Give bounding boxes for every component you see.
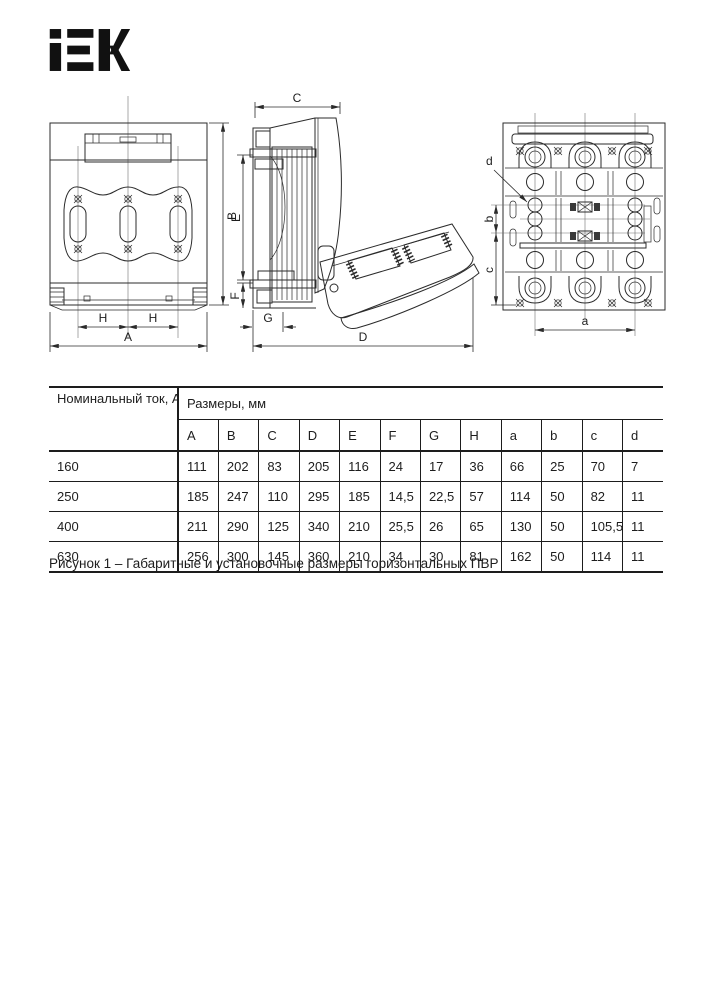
table-row: 400 211 290 125 340 210 25,5 26 65 130 5… bbox=[49, 512, 663, 542]
cell-value: 290 bbox=[218, 512, 258, 542]
dim-col-F: F bbox=[380, 420, 420, 452]
cell-value: 114 bbox=[582, 542, 622, 573]
cell-value: 14,5 bbox=[380, 482, 420, 512]
cell-value: 7 bbox=[622, 451, 663, 482]
cell-value: 50 bbox=[542, 512, 582, 542]
col-header-sizes: Размеры, мм bbox=[178, 387, 663, 420]
cell-current: 160 bbox=[49, 451, 178, 482]
cell-value: 83 bbox=[259, 451, 299, 482]
cell-value: 162 bbox=[501, 542, 541, 573]
table-row: 250 185 247 110 295 185 14,5 22,5 57 114… bbox=[49, 482, 663, 512]
cell-value: 185 bbox=[178, 482, 218, 512]
dim-col-G: G bbox=[420, 420, 460, 452]
cell-value: 36 bbox=[461, 451, 501, 482]
dim-col-D: D bbox=[299, 420, 339, 452]
cell-value: 114 bbox=[501, 482, 541, 512]
dimensions-table: Номинальный ток, А Размеры, мм A B C D E… bbox=[49, 386, 663, 573]
cell-value: 24 bbox=[380, 451, 420, 482]
cell-value: 25 bbox=[542, 451, 582, 482]
dim-label-A: A bbox=[124, 330, 132, 344]
cell-value: 125 bbox=[259, 512, 299, 542]
dim-label-H-right: H bbox=[149, 311, 158, 325]
cell-value: 57 bbox=[461, 482, 501, 512]
dim-label-a: a bbox=[582, 314, 589, 328]
cell-value: 111 bbox=[178, 451, 218, 482]
dim-col-B: B bbox=[218, 420, 258, 452]
front-view-drawing: B H H A bbox=[50, 96, 239, 352]
rear-view-drawing: d b c a bbox=[482, 113, 665, 336]
cell-value: 202 bbox=[218, 451, 258, 482]
dim-label-C: C bbox=[293, 91, 302, 105]
cell-value: 116 bbox=[340, 451, 380, 482]
figure-caption: Рисунок 1 – Габаритные и установочные ра… bbox=[49, 556, 498, 571]
table-row: 160 111 202 83 205 116 24 17 36 66 25 70… bbox=[49, 451, 663, 482]
cell-value: 11 bbox=[622, 512, 663, 542]
cell-value: 66 bbox=[501, 451, 541, 482]
cell-current: 250 bbox=[49, 482, 178, 512]
dim-label-E: E bbox=[229, 214, 243, 222]
cell-value: 295 bbox=[299, 482, 339, 512]
col-header-current: Номинальный ток, А bbox=[49, 387, 178, 451]
cell-value: 11 bbox=[622, 482, 663, 512]
dim-label-d: d bbox=[486, 154, 493, 168]
dim-col-E: E bbox=[340, 420, 380, 452]
cell-value: 82 bbox=[582, 482, 622, 512]
side-view-drawing: C E F G D bbox=[228, 91, 479, 352]
dim-col-A: A bbox=[178, 420, 218, 452]
cell-value: 70 bbox=[582, 451, 622, 482]
cell-value: 11 bbox=[622, 542, 663, 573]
dim-label-H-left: H bbox=[99, 311, 108, 325]
dim-col-H: H bbox=[461, 420, 501, 452]
dim-label-G: G bbox=[263, 311, 272, 325]
dim-col-a: a bbox=[501, 420, 541, 452]
dim-label-F: F bbox=[228, 292, 242, 299]
cell-value: 65 bbox=[461, 512, 501, 542]
cell-value: 25,5 bbox=[380, 512, 420, 542]
cell-value: 26 bbox=[420, 512, 460, 542]
catalog-page: B H H A bbox=[0, 0, 712, 1004]
dim-label-D: D bbox=[359, 330, 368, 344]
dim-label-b: b bbox=[482, 215, 496, 222]
figure-drawings: B H H A bbox=[0, 0, 712, 375]
cell-value: 340 bbox=[299, 512, 339, 542]
cell-value: 247 bbox=[218, 482, 258, 512]
cell-value: 105,5 bbox=[582, 512, 622, 542]
cell-value: 110 bbox=[259, 482, 299, 512]
cell-current: 400 bbox=[49, 512, 178, 542]
cell-value: 185 bbox=[340, 482, 380, 512]
cell-value: 50 bbox=[542, 482, 582, 512]
cell-value: 22,5 bbox=[420, 482, 460, 512]
cell-value: 211 bbox=[178, 512, 218, 542]
dim-col-c: c bbox=[582, 420, 622, 452]
cell-value: 130 bbox=[501, 512, 541, 542]
cell-value: 17 bbox=[420, 451, 460, 482]
dim-col-b: b bbox=[542, 420, 582, 452]
dim-label-c: c bbox=[482, 267, 496, 273]
cell-value: 205 bbox=[299, 451, 339, 482]
cell-value: 210 bbox=[340, 512, 380, 542]
cell-value: 50 bbox=[542, 542, 582, 573]
dimensions-table-wrap: Номинальный ток, А Размеры, мм A B C D E… bbox=[49, 386, 663, 573]
dim-col-d: d bbox=[622, 420, 663, 452]
dim-col-C: C bbox=[259, 420, 299, 452]
